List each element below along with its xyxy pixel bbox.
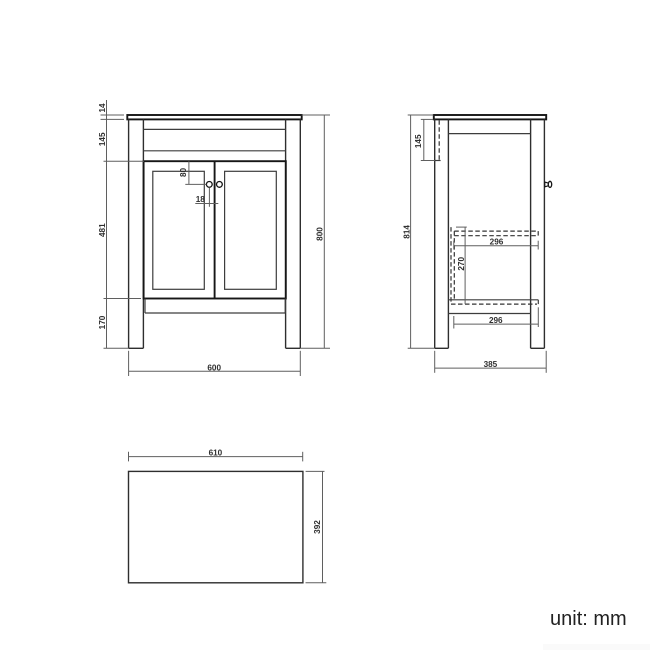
svg-text:145: 145 — [414, 134, 423, 148]
svg-text:481: 481 — [98, 223, 107, 237]
svg-text:80: 80 — [179, 168, 188, 178]
svg-text:392: 392 — [313, 520, 322, 534]
svg-text:170: 170 — [98, 315, 107, 329]
svg-text:145: 145 — [98, 132, 107, 146]
svg-text:800: 800 — [316, 227, 325, 241]
svg-text:14: 14 — [98, 103, 107, 113]
svg-text:18: 18 — [196, 195, 206, 204]
svg-text:610: 610 — [209, 449, 223, 458]
svg-text:296: 296 — [490, 238, 504, 247]
svg-text:600: 600 — [207, 364, 221, 373]
svg-text:296: 296 — [489, 316, 503, 325]
svg-text:814: 814 — [402, 225, 411, 239]
svg-text:385: 385 — [484, 360, 498, 369]
svg-text:270: 270 — [457, 257, 466, 271]
